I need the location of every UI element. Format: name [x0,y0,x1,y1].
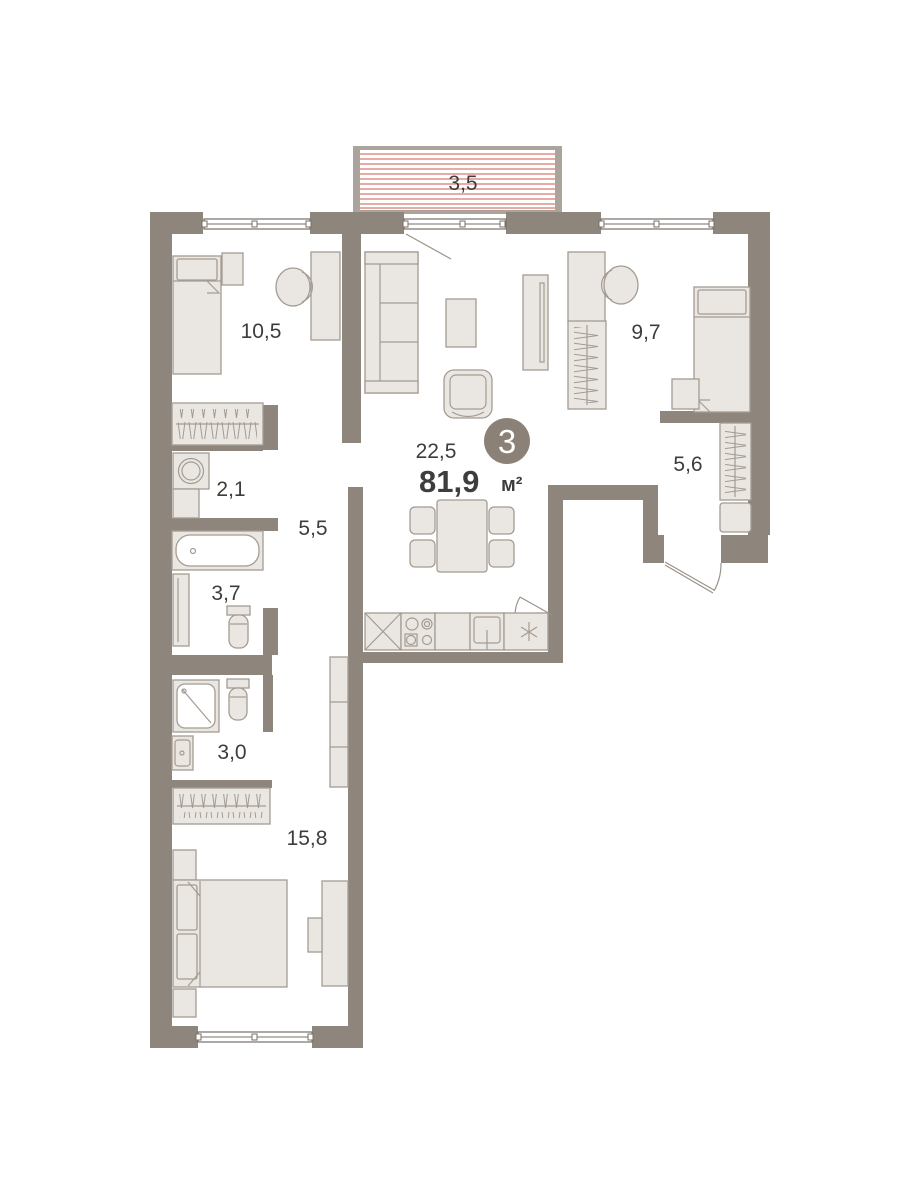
balcony-area-label: 3,5 [448,172,477,195]
sofa [365,252,418,393]
tall-cabinet [330,657,348,787]
shower-cabin [173,680,219,732]
area-label-bedroom-bottom: 15,8 [287,827,328,850]
desk-chair [602,266,638,304]
bathtub [172,531,263,570]
area-label-bedroom-top-right: 9,7 [631,321,660,344]
single-bed [694,287,750,412]
doors [515,562,721,615]
window-bedroom-bottom [196,1032,313,1042]
area-label-bedroom-top-left: 10,5 [241,320,282,343]
armchair [444,370,492,418]
nightstand [173,989,196,1017]
counter [173,489,199,518]
nightstand [173,850,196,880]
area-label-living-kitchen: 22,5 [416,440,457,463]
sink [172,736,193,770]
washing-machine [173,453,209,489]
double-bed [173,880,287,987]
area-label-entry-hall: 5,6 [673,453,702,476]
laundry-furniture [173,453,209,518]
towel-rail [173,574,189,646]
toilet [227,606,250,648]
desk-chair [276,268,312,306]
kitchen-door-swing [515,597,552,615]
tv-stand [523,275,548,370]
nightstand [222,253,243,285]
single-bed [173,256,221,374]
floor-plan: 3,5 [0,0,917,1200]
wardrobe [568,321,606,409]
shower-room-furniture [172,657,348,787]
shoe-cabinet [720,503,751,532]
entry-hall-furniture [720,423,751,532]
desk [311,252,340,340]
desk [568,252,605,322]
area-label-hallway: 5,5 [298,517,327,540]
bedroom-top-left-furniture [172,252,340,445]
dining-table [410,500,514,572]
area-label-shower-room: 3,0 [217,741,246,764]
wardrobe [173,788,270,824]
total-area-value: 81,9 [419,464,479,499]
wardrobe [172,403,263,445]
area-label-bathroom: 3,7 [211,582,240,605]
nightstand [672,379,699,409]
unit-badge: 3 [484,418,530,464]
wardrobe [720,423,751,500]
bedroom-bottom-furniture [173,788,348,1017]
toilet [227,679,249,720]
window-bedroom-top-right [599,219,714,229]
entrance-door [665,562,721,593]
floor-plan-svg: 3,5 [0,0,917,1200]
unit-number: 3 [498,423,516,460]
coffee-table [446,299,476,347]
total-area-unit: м² [501,474,523,496]
kitchen-counter [365,613,548,650]
dresser [308,881,348,986]
window-bedroom-top-left [202,219,311,229]
area-label-laundry: 2,1 [216,478,245,501]
